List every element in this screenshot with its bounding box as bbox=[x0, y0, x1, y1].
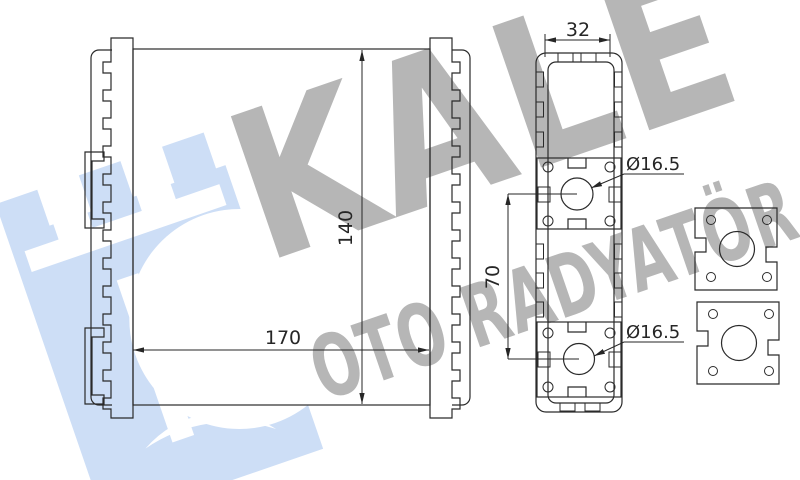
bolt-hole bbox=[763, 216, 772, 225]
dim-label-core-width: 170 bbox=[265, 327, 301, 349]
clinch-tab bbox=[558, 53, 573, 62]
plate-outline bbox=[695, 208, 777, 290]
dia-label-top-port: Ø16.5 bbox=[626, 154, 680, 175]
side-body-inner bbox=[548, 62, 614, 403]
right-tank bbox=[452, 50, 470, 405]
leader-line-bottom-port bbox=[594, 342, 684, 356]
dim-label-tank-width: 32 bbox=[566, 19, 590, 41]
bolt-hole bbox=[765, 310, 774, 319]
dim-label-port-spacing: 70 bbox=[482, 265, 504, 289]
core-outline bbox=[133, 49, 430, 405]
drawing: 140 170 bbox=[0, 0, 800, 480]
clinch-tab bbox=[560, 403, 575, 411]
plate-center-hole bbox=[722, 326, 757, 361]
plate-outline bbox=[697, 302, 779, 384]
mounting-bracket-upper bbox=[85, 152, 104, 228]
dim-label-core-height: 140 bbox=[335, 210, 357, 246]
clinch-tab bbox=[581, 53, 596, 62]
technical-drawing-canvas: KL KL KALE OTO RADYATÖR bbox=[0, 0, 800, 480]
flange-ear bbox=[609, 352, 621, 367]
bolt-hole bbox=[763, 273, 772, 282]
leader-line-top-port bbox=[591, 174, 684, 188]
mounting-bracket-lower bbox=[85, 328, 104, 404]
bolt-hole bbox=[709, 367, 718, 376]
bolt-hole bbox=[707, 216, 716, 225]
flange-plate-bottom bbox=[697, 302, 779, 384]
right-header-plate bbox=[430, 38, 460, 418]
bolt-hole bbox=[765, 367, 774, 376]
front-view: 140 170 bbox=[85, 38, 470, 418]
flange-ear bbox=[609, 187, 621, 202]
flange-plate-top bbox=[695, 208, 777, 290]
clinch-tab bbox=[585, 403, 600, 411]
side-view: 32 70 Ø16.5 Ø16.5 bbox=[482, 19, 684, 412]
left-header-plate bbox=[103, 38, 133, 418]
bolt-hole bbox=[709, 310, 718, 319]
plate-center-hole bbox=[720, 232, 755, 267]
bolt-hole bbox=[707, 273, 716, 282]
dia-label-bottom-port: Ø16.5 bbox=[626, 322, 680, 343]
